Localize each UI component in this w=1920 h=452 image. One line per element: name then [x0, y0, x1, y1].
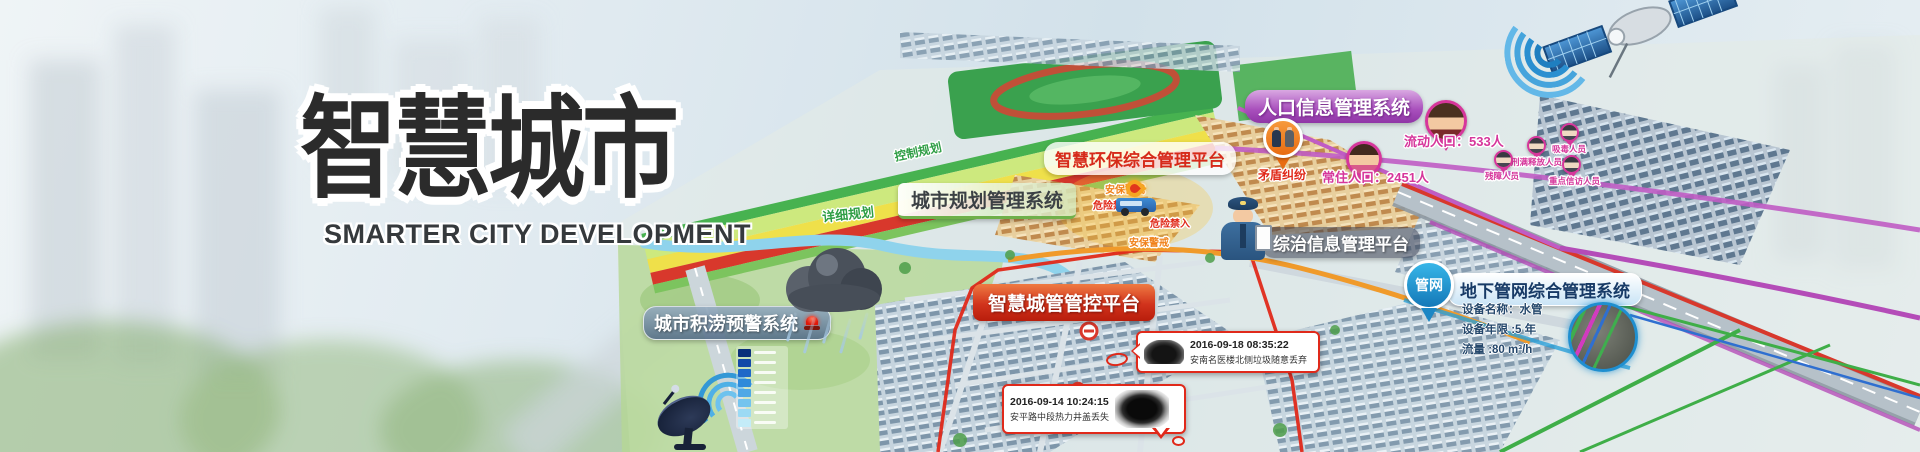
police-hat: [1228, 197, 1258, 210]
pipe-network-pin: 管网: [1404, 260, 1454, 330]
floating-population-stat: 流动人口：533人: [1404, 131, 1504, 150]
callout-pointer-down: [1152, 428, 1170, 448]
banner-title: 智慧城市: [300, 58, 676, 219]
person-avatar-icon: [1560, 123, 1579, 142]
pipe-flow-rate: 流量 :80 m³/h: [1462, 340, 1543, 360]
pipe-device-info: 设备名称：水管 设备年限 :5 年 流量 :80 m³/h: [1462, 300, 1543, 360]
police-officer-icon: [1219, 197, 1267, 267]
pipe-badge: 管网: [1404, 260, 1454, 310]
manhole-photo: [1115, 390, 1169, 428]
person-avatar-icon: [1562, 155, 1581, 174]
callout-pointer-left: [1123, 343, 1140, 359]
conflict-people-icon: [1263, 118, 1303, 158]
garbage-photo: [1144, 340, 1184, 364]
banner-subtitle: SMARTER CITY DEVELOPMENT: [324, 219, 751, 250]
system-label-city-management: 智慧城管管控平台: [973, 284, 1155, 321]
alert-security-cordon-2: 安保警戒: [1129, 234, 1169, 249]
satellite-dish-icon: [648, 392, 732, 452]
incident-time: 2016-09-14 10:24:15: [1010, 396, 1109, 408]
smart-city-banner: 智慧城市 SMARTER CITY DEVELOPMENT 控制规划 详细规划 …: [0, 0, 1920, 452]
incident-callout-garbage: 2016-09-18 08:35:22 安南名医楼北侧垃圾随意丢弃: [1136, 331, 1320, 373]
group-label-key-petitioners: 重点信访人员: [1549, 175, 1600, 187]
system-label-environment: 智慧环保综合管理平台: [1044, 142, 1236, 175]
city-aerial-map: [0, 0, 1920, 452]
incident-location-marker-manhole: [1172, 436, 1185, 446]
flood-warning-label: 城市积涝预警系统: [654, 310, 798, 336]
rain-cloud-icon: [782, 246, 886, 346]
system-label-urban-planning: 城市规划管理系统: [898, 183, 1076, 219]
incident-desc: 安平路中段热力井盖丢失: [1010, 410, 1109, 423]
group-label-disabled-persons: 残障人员: [1485, 170, 1519, 182]
alert-conflict-dispute: 矛盾纠纷: [1258, 166, 1306, 183]
fire-incident-icon: [1110, 184, 1166, 222]
pipe-device-name: 设备名称：水管: [1462, 300, 1543, 320]
rain-legend: [736, 346, 788, 429]
system-label-governance: 综治信息管理平台: [1262, 227, 1420, 258]
person-avatar-icon: [1494, 150, 1513, 169]
underground-pipes-photo: [1568, 302, 1638, 372]
incident-callout-manhole: 2016-09-14 10:24:15 安平路中段热力井盖丢失: [1002, 384, 1186, 434]
incident-time: 2016-09-18 08:35:22: [1190, 339, 1307, 351]
phone-icon: [1255, 225, 1272, 251]
group-label-released-prisoners: 刑满释放人员: [1511, 156, 1562, 168]
group-label-drug-users: 吸毒人员: [1552, 143, 1586, 155]
pipe-device-age: 设备年限 :5 年: [1462, 320, 1543, 340]
resident-population-stat: 常住人口：2451人: [1322, 167, 1429, 186]
person-avatar-icon: [1527, 136, 1546, 155]
fire-truck-icon: [1116, 198, 1156, 212]
incident-desc: 安南名医楼北侧垃圾随意丢弃: [1190, 353, 1307, 366]
